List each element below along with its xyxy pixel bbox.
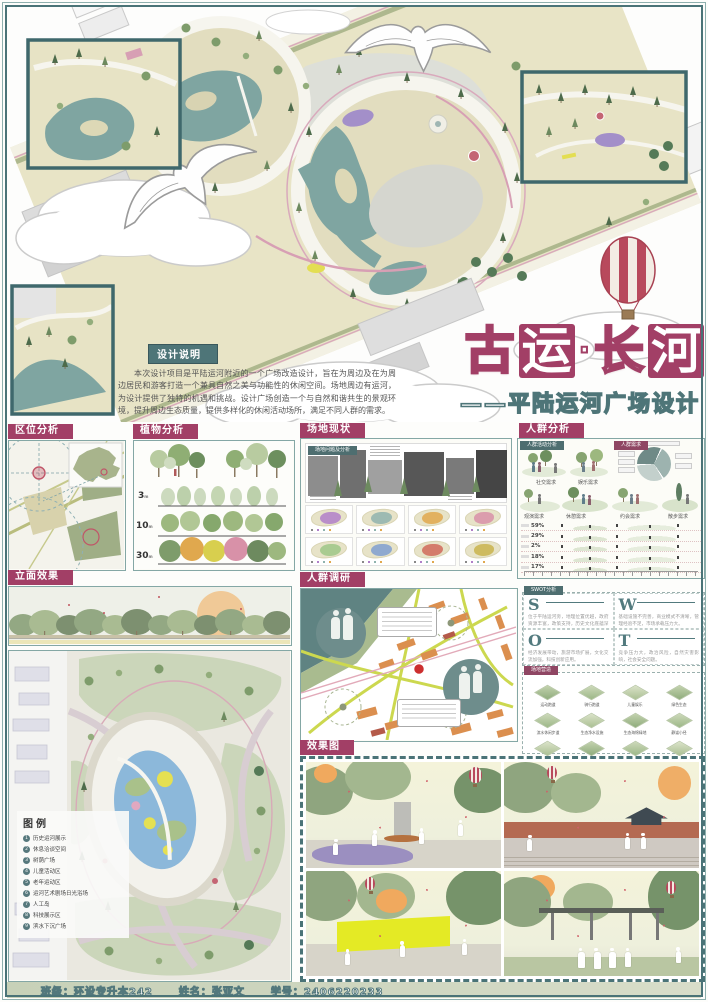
speech-bubble — [397, 699, 461, 727]
site-photo — [476, 450, 507, 498]
master-plan-panel: 图例 1历史运河展示 2休息洽谈空间 3树荫广场 4儿童活动区 5老年运动区 6… — [8, 650, 292, 982]
tree-icon — [568, 487, 579, 498]
pergola-roof — [539, 908, 664, 912]
site-status-panel: 场地问题及分析 — [300, 438, 512, 571]
tree-icon — [524, 489, 533, 498]
site-photo — [340, 450, 366, 498]
footer-info-bar: 班级：环设专升本242 姓名：张亚文 学号：2406220233 — [7, 982, 701, 998]
location-analysis-panel — [8, 440, 126, 571]
site-diagram — [459, 537, 507, 566]
site-diagram — [305, 505, 353, 534]
legend-item: 6运河艺术剧场日光浴场 — [23, 889, 125, 897]
legend-item: 4儿童活动区 — [23, 867, 125, 875]
need-label: 散步需求 — [668, 513, 688, 520]
person-icon — [538, 465, 541, 472]
design-note: 设计说明 本次设计项目是平陆运河附近的一个广场改造设计，旨在为周边及在为周边居民… — [112, 343, 396, 418]
person-icon — [636, 497, 639, 504]
render-pavilion — [504, 762, 699, 868]
person-icon — [538, 497, 541, 504]
site-photo — [446, 458, 474, 494]
render-pergola — [504, 871, 699, 977]
site-marker — [33, 467, 45, 479]
red-wall — [504, 822, 699, 838]
steps — [504, 854, 699, 868]
swot-strengths: S 位于平陆运河旁，地理位置优越，政府资源丰富，政策支持，历史文化底蕴深厚。 — [523, 593, 614, 629]
crowd-analysis-panel: 人群活动分析 人群需求 社交需求 娱乐需求 — [517, 438, 705, 579]
site-photo — [404, 452, 444, 496]
pavilion — [625, 807, 668, 825]
sun — [376, 889, 407, 912]
strategy-item: 骑行跑道 — [570, 681, 614, 708]
site-photo — [308, 456, 338, 496]
needs-pie-chart — [637, 447, 671, 481]
design-note-body: 本次设计项目是平陆运河附近的一个广场改造设计，旨在为周边及在为周边居民和游客打造… — [118, 368, 396, 418]
pie-label — [618, 451, 635, 457]
legend-item: 1历史运河展示 — [23, 834, 125, 842]
strategy-item: 运动跑道 — [526, 681, 570, 708]
legend-item: 3树荫广场 — [23, 856, 125, 864]
growth-year-label: 10m — [136, 521, 153, 531]
pie-label — [675, 463, 692, 469]
class-label: 班级：环设专升本242 — [41, 983, 153, 998]
strategies-panel: 运动跑道 骑行跑道 儿童娱乐 绿色生态 滨水休闲步道 生态净水设施 生态海绵绿地… — [522, 672, 705, 754]
render-playground — [306, 762, 501, 868]
legend-item: 5老年运动区 — [23, 878, 125, 886]
plan-legend: 图例 1历史运河展示 2休息洽谈空间 3树荫广场 4儿童活动区 5老年运动区 6… — [17, 811, 129, 938]
site-diagram — [356, 505, 404, 534]
ground-shape — [662, 499, 698, 512]
site-marker — [414, 664, 425, 675]
percent-row: 18% — [521, 552, 701, 562]
purple-playground — [312, 844, 413, 865]
person-icon — [532, 465, 535, 472]
pie-label — [618, 467, 635, 473]
interviewee-silhouette — [473, 671, 482, 693]
growth-year-label: 3m — [138, 491, 148, 501]
legend-item: 7人工岛 — [23, 900, 125, 908]
title-char: 古 — [465, 324, 515, 378]
need-label: 娱乐需求 — [578, 479, 598, 486]
inset-detail-3 — [522, 72, 686, 182]
legend-title: 图例 — [23, 815, 125, 830]
person-icon — [582, 497, 585, 504]
interviewee-silhouette — [459, 673, 470, 699]
activity-percentage-chart: 59% 29% 2% 18% 17% — [521, 521, 701, 573]
ground-shape — [612, 501, 658, 512]
pergola-column — [629, 913, 632, 940]
site-photos-label: 场地问题及分析 — [308, 446, 357, 455]
need-label: 休憩需求 — [566, 513, 586, 520]
tree-icon — [590, 449, 603, 462]
section-header-crowd: 人群分析 — [519, 423, 584, 438]
plant-analysis-panel: 3m 10m 30m — [133, 440, 295, 571]
pie-label — [618, 459, 635, 465]
tree-icon — [540, 450, 552, 462]
strategy-item: 儿童娱乐 — [614, 681, 658, 708]
percent-row: 59% — [521, 521, 701, 531]
crowd-needs-tab: 人群需求 — [614, 441, 648, 450]
section-header-elevation: 立面效果 — [8, 570, 73, 585]
strategy-item: 生态海绵绿地 — [614, 709, 658, 736]
elevation-panel — [8, 586, 292, 646]
site-photo-strip: 场地问题及分析 — [305, 443, 507, 503]
person-icon — [630, 497, 633, 504]
interviewee-silhouette — [331, 617, 340, 639]
poster-title: 古 运 · 长 河 — [461, 324, 704, 378]
poster-root: 古 运 · 长 河 ——平陆运河广场设计 设计说明 本次设计项目是平陆运河附近的… — [0, 0, 708, 1002]
ground-shape — [562, 499, 608, 512]
site-photo — [368, 460, 402, 494]
photo-caption — [370, 446, 400, 456]
title-separator-dot: · — [579, 324, 590, 378]
site-diagram — [459, 505, 507, 534]
tree-icon — [576, 452, 587, 463]
legend-item: 9滨水下沉广场 — [23, 922, 125, 930]
site-diagram — [305, 537, 353, 566]
elevation-drawing — [9, 587, 290, 644]
crowd-survey-panel — [300, 588, 518, 742]
photo-caption — [310, 496, 336, 501]
person-icon — [592, 464, 595, 471]
pie-label — [675, 453, 692, 459]
strategy-item: 滨水休闲步道 — [526, 709, 570, 736]
need-label: 约会需求 — [620, 513, 640, 520]
section-header-survey: 人群调研 — [300, 572, 365, 587]
tree-icon — [618, 488, 628, 498]
crowd-activity-tab: 人群活动分析 — [520, 441, 564, 450]
site-diagram — [408, 505, 456, 534]
section-header-renders: 效果图 — [300, 740, 354, 755]
need-label: 观演需求 — [524, 513, 544, 520]
strategies-tab: 场地营造 — [524, 666, 558, 675]
interview-circle-1 — [316, 608, 366, 658]
flower-bed — [469, 151, 480, 162]
renders-panel — [300, 756, 705, 982]
growth-year-label: 30m — [136, 551, 153, 561]
interviewee-silhouette — [343, 615, 353, 640]
strategy-item: 绿色生态 — [657, 681, 701, 708]
name-label: 姓名：张亚文 — [179, 983, 245, 998]
site-diagram — [408, 537, 456, 566]
strategy-item: 静谧小径 — [657, 709, 701, 736]
poster-subtitle: ——平陆运河广场设计 — [460, 386, 700, 418]
pergola-column — [551, 913, 554, 940]
site-diagram — [356, 537, 404, 566]
title-char: 长 — [594, 324, 644, 378]
photo-caption — [448, 496, 472, 501]
inset-detail-1 — [28, 40, 180, 168]
section-header-site: 场地现状 — [300, 423, 365, 438]
percent-row: 2% — [521, 542, 701, 552]
pergola-column — [590, 913, 593, 940]
design-note-header: 设计说明 — [148, 344, 218, 364]
render-yellow-wall — [306, 871, 501, 977]
swot-opportunities: O 经济发展带动，旅游市场扩展，文化交流加强，科技创新应用。 — [523, 629, 614, 665]
location-map — [9, 441, 124, 569]
cypress-icon — [676, 483, 682, 501]
title-char: 运 — [519, 324, 575, 378]
yellow-wall — [337, 916, 450, 951]
percent-row: 29% — [521, 531, 701, 541]
person-icon — [582, 465, 585, 472]
inset-detail-2 — [12, 286, 113, 414]
swot-panel: S 位于平陆运河旁，地理位置优越，政府资源丰富，政策支持，历史文化底蕴深厚。 W… — [522, 592, 705, 666]
need-label: 社交需求 — [536, 479, 556, 486]
person-icon — [588, 498, 591, 505]
person-icon — [686, 497, 689, 504]
person-icon — [554, 466, 557, 473]
section-header-plants: 植物分析 — [133, 424, 198, 439]
swot-threats: T 竞争压力大，政治风险，自然灾害影响，社会安全问题。 — [614, 629, 705, 665]
title-char: 河 — [648, 324, 704, 378]
legend-item: 8科技展示区 — [23, 911, 125, 919]
section-header-location: 区位分析 — [8, 424, 73, 439]
pie-title-line — [644, 441, 680, 446]
cloud-top — [266, 10, 350, 34]
speech-bubble — [377, 607, 437, 637]
swot-tab: SWOT分析 — [524, 586, 563, 595]
swot-weaknesses: W 基础设施不完善，商业模式不清晰，管理经验不足，市场承载压力大。 — [614, 593, 705, 629]
ground-shape — [522, 467, 566, 477]
pergola-column — [656, 913, 659, 940]
chart-axis-ticks — [524, 571, 698, 576]
ground-shape — [570, 467, 608, 477]
plant-growth-diagram — [134, 441, 293, 569]
legend-item: 2休息洽谈空间 — [23, 845, 125, 853]
site-diagram-grid — [305, 505, 507, 566]
student-id-label: 学号：2406220233 — [271, 983, 384, 998]
strategy-item: 生态净水设施 — [570, 709, 614, 736]
sun — [658, 766, 691, 800]
